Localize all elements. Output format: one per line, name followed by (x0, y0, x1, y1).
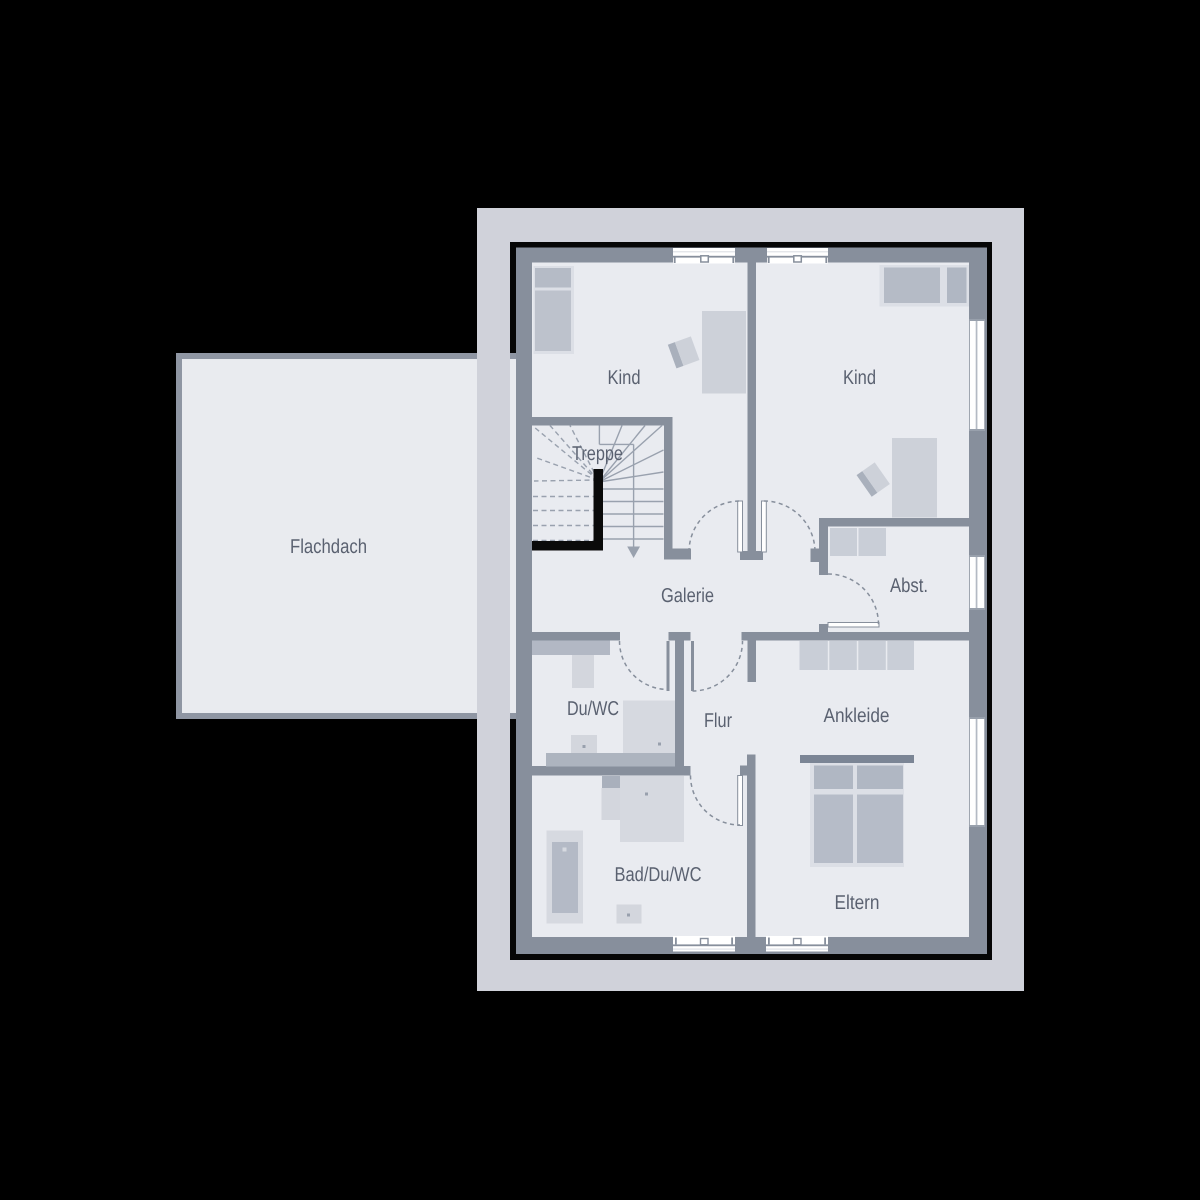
svg-text:Abst.: Abst. (890, 575, 928, 597)
svg-text:Galerie: Galerie (661, 585, 714, 607)
svg-text:Du/WC: Du/WC (567, 698, 619, 720)
svg-text:Ankleide: Ankleide (823, 705, 889, 727)
svg-text:Flur: Flur (704, 710, 732, 732)
svg-text:Kind: Kind (843, 367, 876, 389)
svg-text:Flachdach: Flachdach (290, 536, 367, 558)
svg-text:Treppe: Treppe (572, 443, 623, 465)
svg-text:Eltern: Eltern (834, 892, 879, 914)
svg-text:Bad/Du/WC: Bad/Du/WC (614, 864, 701, 886)
svg-text:Kind: Kind (607, 367, 640, 389)
